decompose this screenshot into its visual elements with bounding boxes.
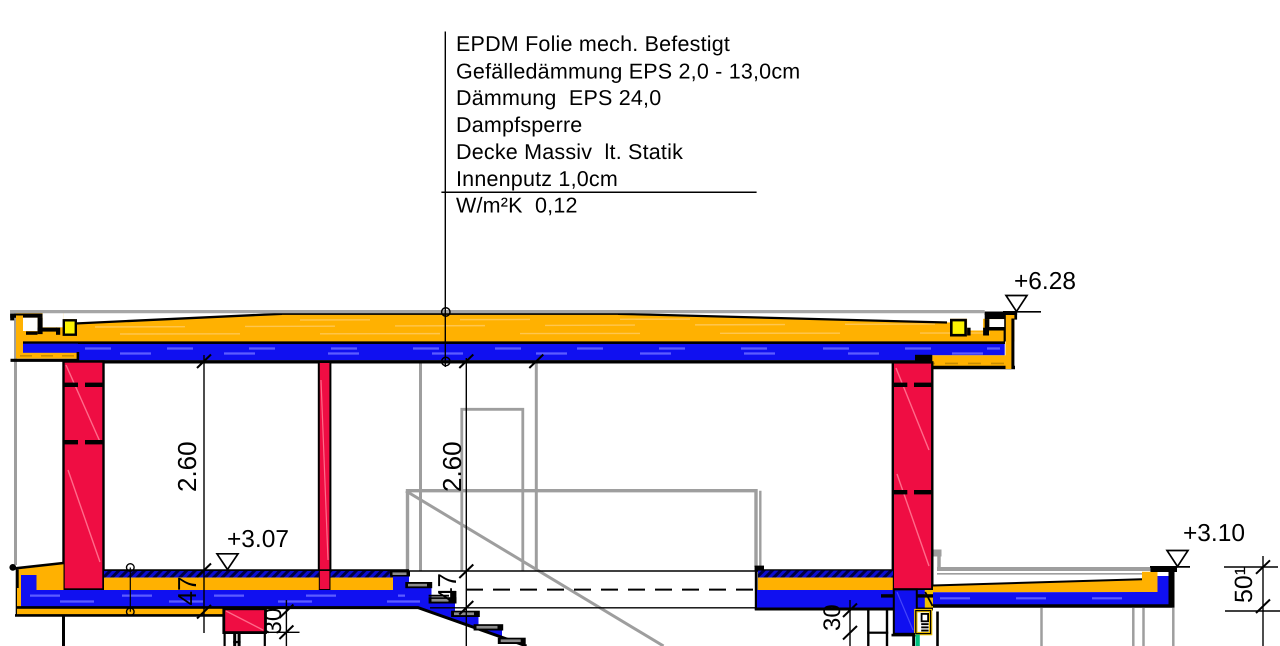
svg-text:2.60: 2.60 xyxy=(172,441,202,492)
svg-text:EPDM Folie mech. Befestigt: EPDM Folie mech. Befestigt xyxy=(456,32,730,56)
svg-text:W/m²K 0,12: W/m²K 0,12 xyxy=(456,193,578,217)
svg-text:Decke Massiv lt. Statik: Decke Massiv lt. Statik xyxy=(456,140,683,164)
svg-text:+3.10: +3.10 xyxy=(1183,520,1245,547)
svg-text:Innenputz 1,0cm: Innenputz 1,0cm xyxy=(456,167,618,191)
svg-text:Gefälledämmung EPS 2,0 - 13,0c: Gefälledämmung EPS 2,0 - 13,0cm xyxy=(456,60,800,84)
svg-text:30: 30 xyxy=(260,608,287,635)
svg-text:+6.28: +6.28 xyxy=(1014,268,1076,295)
svg-text:30: 30 xyxy=(819,604,846,631)
svg-text:50¹: 50¹ xyxy=(1230,567,1258,603)
svg-text:47: 47 xyxy=(432,573,462,602)
svg-text:Dampfsperre: Dampfsperre xyxy=(456,113,582,137)
svg-text:Dämmung EPS 24,0: Dämmung EPS 24,0 xyxy=(456,86,661,110)
svg-text:47: 47 xyxy=(172,577,202,606)
svg-text:2.60: 2.60 xyxy=(437,441,467,492)
svg-text:+3.07: +3.07 xyxy=(227,526,289,553)
